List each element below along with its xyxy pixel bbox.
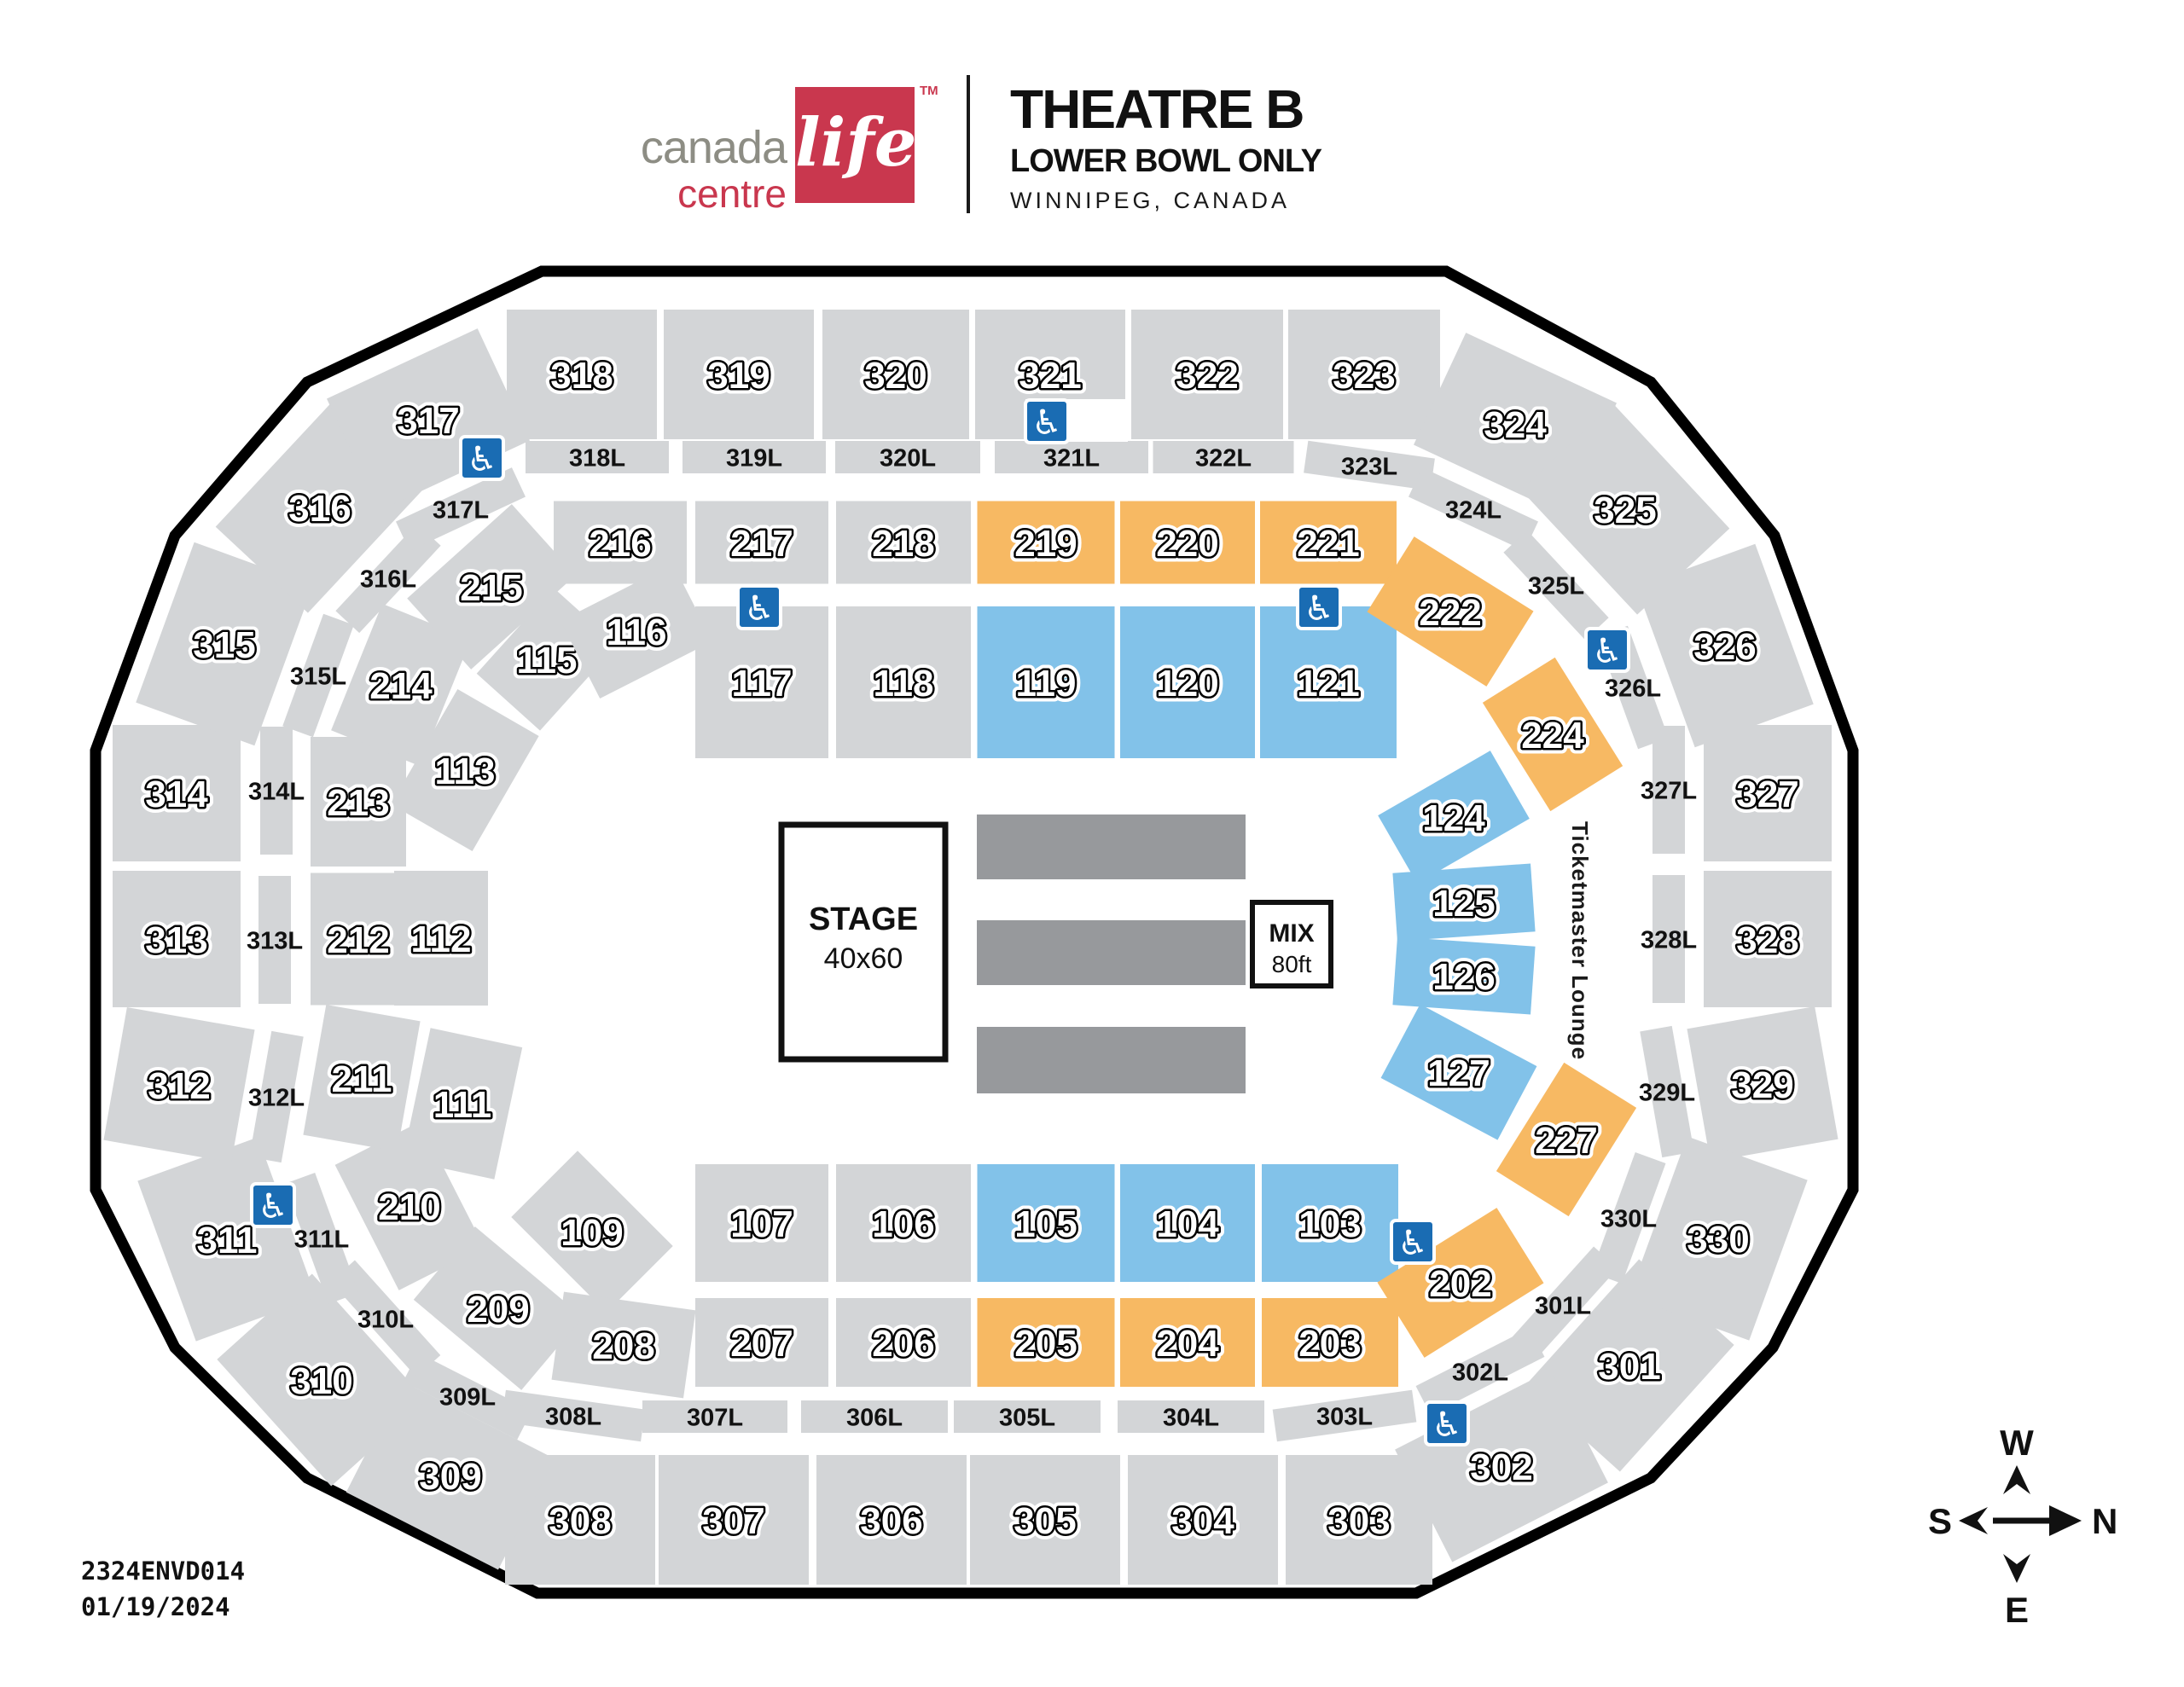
section-label: 313	[145, 919, 207, 961]
section-label: 318	[550, 355, 613, 397]
section-321L[interactable]: 321L	[995, 441, 1148, 473]
section-label: 306	[860, 1500, 922, 1542]
wheelchair-icon: ♿	[1298, 586, 1340, 629]
section-label: 206	[872, 1323, 934, 1365]
section-label: 303L	[1316, 1403, 1373, 1430]
section-313[interactable]: 313313	[113, 871, 241, 1007]
section-328[interactable]: 328328	[1704, 871, 1832, 1007]
section-label: 311L	[294, 1226, 350, 1253]
section-112[interactable]: 112112	[394, 871, 488, 1006]
section-label: 306L	[846, 1404, 903, 1431]
section-label: 309	[419, 1456, 481, 1498]
section-label: 210	[378, 1186, 440, 1228]
section-label: 309L	[439, 1383, 496, 1411]
section-label: 319L	[726, 444, 782, 472]
section-213[interactable]: 213213	[311, 737, 406, 867]
section-218[interactable]: 218218	[836, 501, 971, 584]
section-322[interactable]: 322322	[1131, 310, 1283, 439]
section-126[interactable]: 126126	[1392, 936, 1535, 1014]
section-label: 318L	[569, 444, 625, 472]
section-303[interactable]: 303303	[1286, 1455, 1432, 1585]
wheelchair-glyph: ♿	[744, 589, 775, 629]
section-221[interactable]: 221221	[1260, 501, 1397, 584]
section-label: 217	[730, 523, 793, 565]
wheelchair-glyph: ♿	[1397, 1224, 1428, 1263]
section-label: 325	[1594, 490, 1656, 531]
section-label: 121	[1297, 663, 1359, 704]
section-203[interactable]: 203203	[1262, 1298, 1398, 1387]
section-label: 204	[1156, 1323, 1219, 1365]
section-307L[interactable]: 307L	[642, 1400, 787, 1433]
section-label: 328	[1736, 919, 1798, 961]
section-label: 124	[1422, 797, 1485, 839]
section-label: 302L	[1452, 1359, 1508, 1386]
section-label: 120	[1156, 663, 1218, 704]
section-label: 322L	[1195, 444, 1252, 472]
section-label: 307L	[687, 1404, 743, 1431]
section-label: 317L	[433, 496, 489, 524]
section-label: 202	[1429, 1263, 1491, 1305]
section-318L[interactable]: 318L	[526, 441, 669, 473]
section-label: 304	[1171, 1500, 1234, 1542]
section-label: 303	[1327, 1500, 1390, 1542]
compass-down-arrowhead	[2003, 1554, 2030, 1583]
section-label: 219	[1014, 523, 1077, 565]
section-label: 326L	[1605, 675, 1661, 702]
stage-label: STAGE	[809, 901, 918, 937]
section-label: 213	[327, 782, 389, 824]
section-label: 308	[549, 1500, 611, 1542]
section-207[interactable]: 207207	[695, 1298, 828, 1387]
section-319[interactable]: 319319	[664, 310, 814, 439]
wheelchair-icon: ♿	[461, 437, 503, 479]
wheelchair-glyph: ♿	[1432, 1406, 1462, 1445]
section-label: 126	[1432, 956, 1495, 998]
section-label: 105	[1014, 1203, 1077, 1245]
section-125[interactable]: 125125	[1392, 863, 1535, 941]
wheelchair-glyph: ♿	[1031, 403, 1062, 443]
section-label: 215	[460, 567, 522, 609]
section-label: 315L	[290, 663, 346, 690]
section-306[interactable]: 306306	[816, 1455, 967, 1585]
section-305L[interactable]: 305L	[954, 1400, 1101, 1433]
compass-west: W	[2000, 1423, 2034, 1463]
section-label: 304L	[1163, 1404, 1219, 1431]
compass-north: N	[2092, 1501, 2117, 1541]
mix-size-label: 80ft	[1272, 951, 1312, 977]
section-label: 315	[193, 624, 255, 666]
section-label: 312	[148, 1065, 210, 1107]
section-label: 330L	[1600, 1205, 1657, 1232]
section-label: 311	[197, 1220, 258, 1261]
section-label: 103	[1298, 1203, 1361, 1245]
compass-rose: W N E S	[1928, 1423, 2117, 1630]
mix-label: MIX	[1269, 919, 1314, 948]
section-label: 312L	[248, 1084, 305, 1111]
plan-code: 2324ENVD014	[81, 1557, 245, 1586]
wheelchair-glyph: ♿	[467, 440, 497, 479]
section-205[interactable]: 205205	[978, 1298, 1115, 1387]
section-label: 207	[730, 1323, 793, 1365]
section-107[interactable]: 107107	[695, 1164, 828, 1282]
section-219[interactable]: 219219	[978, 501, 1115, 584]
section-220[interactable]: 220220	[1120, 501, 1255, 584]
section-217[interactable]: 217217	[695, 501, 828, 584]
section-204[interactable]: 204204	[1120, 1298, 1255, 1387]
section-label: 327	[1736, 774, 1798, 815]
section-label: 314	[145, 774, 208, 815]
section-label: 326	[1693, 626, 1756, 668]
plan-date: 01/19/2024	[81, 1592, 230, 1621]
section-label: 118	[874, 663, 934, 704]
section-label: 323	[1333, 355, 1395, 397]
section-label: 321	[1019, 355, 1081, 397]
wheelchair-glyph: ♿	[258, 1187, 288, 1226]
section-label: 218	[872, 523, 934, 565]
wheelchair-icon: ♿	[1586, 629, 1629, 671]
section-label: 214	[369, 665, 433, 707]
section-label: 209	[467, 1289, 529, 1330]
section-103[interactable]: 103103	[1262, 1164, 1398, 1282]
section-label: 316	[288, 488, 351, 530]
section-label: 327L	[1641, 777, 1697, 804]
section-label: 109	[561, 1212, 623, 1254]
section-label: 310L	[357, 1306, 414, 1333]
section-label: 328L	[1641, 926, 1697, 954]
section-label: 317	[397, 400, 459, 442]
section-label: 112	[411, 919, 472, 960]
section-120[interactable]: 120120	[1120, 606, 1255, 758]
section-304[interactable]: 304304	[1128, 1455, 1278, 1585]
section-label: 222	[1419, 592, 1481, 634]
wheelchair-glyph: ♿	[1304, 589, 1334, 629]
arena-map: 3013013023023033033043043053053063063073…	[0, 0, 2184, 1687]
section-label: 127	[1427, 1052, 1490, 1094]
section-105[interactable]: 105105	[978, 1164, 1115, 1282]
section-216[interactable]: 216216	[554, 501, 687, 584]
section-label: 313L	[247, 927, 303, 954]
section-label: 324L	[1445, 496, 1501, 524]
section-306L[interactable]: 306L	[801, 1400, 948, 1433]
section-label: 104	[1156, 1203, 1219, 1245]
compass-up-arrowhead	[2003, 1465, 2030, 1494]
section-320[interactable]: 320320	[822, 310, 969, 439]
compass-east: E	[2005, 1590, 2029, 1630]
section-314[interactable]: 314314	[113, 725, 241, 861]
section-label: 227	[1535, 1120, 1597, 1162]
section-327[interactable]: 327327	[1704, 725, 1832, 861]
section-label: 316L	[360, 565, 416, 593]
section-label: 325L	[1528, 572, 1584, 600]
wheelchair-glyph: ♿	[1592, 632, 1623, 671]
compass-left-arrowhead	[1959, 1507, 1988, 1534]
section-label: 106	[872, 1203, 934, 1245]
section-label: 322	[1176, 355, 1238, 397]
section-label: 319	[707, 355, 770, 397]
section-118[interactable]: 118118	[836, 606, 971, 758]
section-label: 321L	[1043, 444, 1100, 472]
section-label: 107	[730, 1203, 793, 1245]
section-label: 310	[290, 1360, 352, 1402]
section-label: 308L	[545, 1403, 601, 1430]
floor-seating-block-3	[977, 1027, 1246, 1093]
section-label: 324	[1484, 404, 1547, 446]
section-320L[interactable]: 320L	[835, 441, 980, 473]
section-label: 307	[702, 1500, 764, 1542]
section-label: 330	[1687, 1219, 1749, 1261]
section-label: 301L	[1535, 1292, 1591, 1319]
section-119[interactable]: 119119	[978, 606, 1115, 758]
section-label: 203	[1298, 1323, 1361, 1365]
section-label: 212	[327, 919, 389, 961]
wheelchair-icon: ♿	[1391, 1220, 1434, 1263]
section-106[interactable]: 106106	[836, 1164, 971, 1282]
section-label: 208	[592, 1325, 654, 1367]
section-label: 302	[1470, 1446, 1532, 1488]
section-label: 117	[732, 663, 793, 704]
stage-size-label: 40x60	[824, 942, 903, 975]
compass-north-arrowhead	[2049, 1505, 2082, 1536]
section-label: 119	[1016, 663, 1077, 704]
section-305[interactable]: 305305	[970, 1455, 1120, 1585]
section-318[interactable]: 318318	[507, 310, 657, 439]
wheelchair-icon: ♿	[1426, 1402, 1468, 1445]
wheelchair-icon: ♿	[1025, 400, 1068, 443]
section-212[interactable]: 212212	[311, 873, 406, 1006]
section-label: 329L	[1639, 1079, 1695, 1106]
section-208[interactable]: 208208	[552, 1292, 696, 1399]
section-label: 314L	[248, 778, 305, 805]
seating-chart-page: canada centre life TM THEATRE B LOWER BO…	[0, 0, 2184, 1687]
section-label: 323L	[1341, 453, 1397, 480]
section-label: 211	[332, 1058, 392, 1100]
section-104[interactable]: 104104	[1120, 1164, 1255, 1282]
section-304L[interactable]: 304L	[1118, 1400, 1264, 1433]
section-329[interactable]: 329329	[1687, 1006, 1838, 1162]
floor-seating-block-1	[977, 815, 1246, 879]
section-322L[interactable]: 322L	[1153, 441, 1294, 473]
section-label: 111	[433, 1084, 492, 1126]
section-label: 205	[1014, 1323, 1077, 1365]
wheelchair-icon: ♿	[738, 586, 781, 629]
floor-seating-block-2	[977, 920, 1246, 985]
wheelchair-icon: ♿	[252, 1184, 294, 1226]
section-label: 329	[1731, 1064, 1793, 1106]
section-323[interactable]: 323323	[1288, 310, 1440, 439]
section-label: 216	[589, 523, 651, 565]
section-label: 301	[1598, 1346, 1660, 1388]
section-label: 221	[1297, 523, 1359, 565]
section-label: 113	[435, 751, 496, 792]
compass-south: S	[1928, 1501, 1952, 1541]
section-label: 125	[1432, 883, 1495, 925]
ticketmaster-lounge-label: Ticketmaster Lounge	[1567, 821, 1593, 1060]
section-307[interactable]: 307307	[659, 1455, 809, 1585]
section-312[interactable]: 312312	[103, 1007, 254, 1162]
section-label: 320L	[880, 444, 936, 472]
section-label: 116	[607, 612, 667, 653]
section-label: 115	[517, 640, 578, 681]
section-label: 305	[1014, 1500, 1076, 1542]
section-319L[interactable]: 319L	[682, 441, 826, 473]
section-206[interactable]: 206206	[836, 1298, 971, 1387]
section-label: 320	[864, 355, 926, 397]
section-label: 224	[1521, 715, 1584, 757]
section-label: 220	[1156, 523, 1218, 565]
section-label: 305L	[999, 1404, 1055, 1431]
